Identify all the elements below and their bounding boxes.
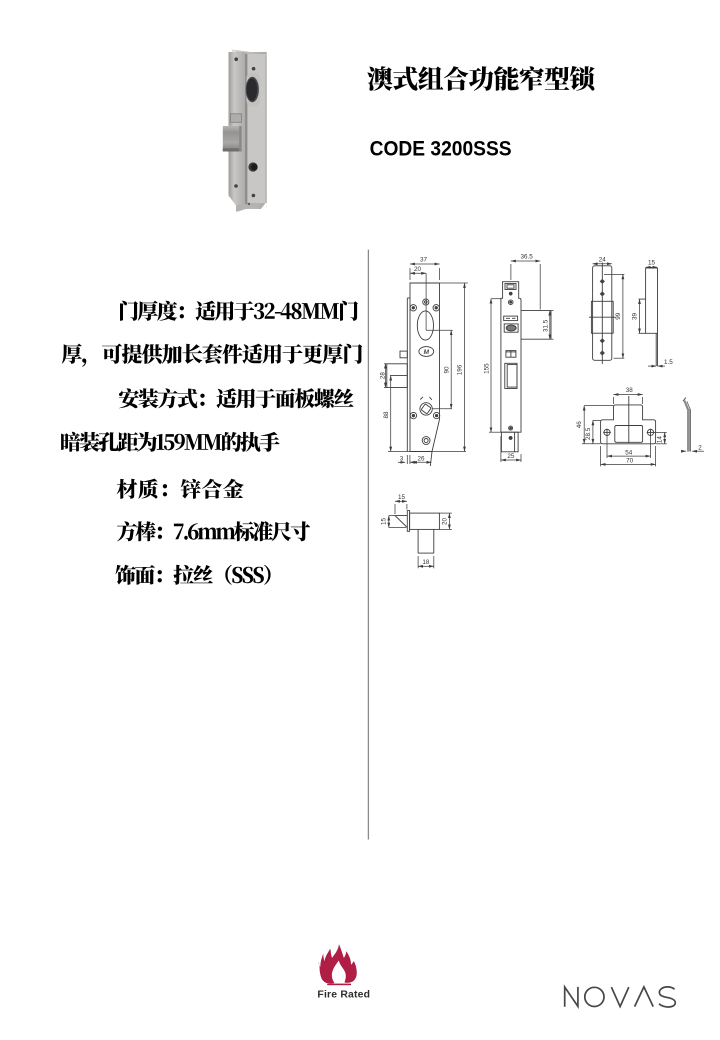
- svg-text:99: 99: [615, 312, 622, 320]
- svg-text:46: 46: [576, 421, 583, 429]
- svg-text:37: 37: [420, 257, 428, 264]
- svg-text:20: 20: [414, 266, 422, 273]
- svg-text:155: 155: [484, 363, 491, 374]
- svg-text:20: 20: [442, 518, 449, 526]
- svg-text:88: 88: [383, 411, 390, 419]
- svg-text:Fire Rated: Fire Rated: [317, 990, 370, 1001]
- svg-text:24: 24: [599, 257, 607, 264]
- svg-text:31.5: 31.5: [542, 319, 549, 332]
- svg-text:15: 15: [398, 494, 406, 501]
- svg-text:38: 38: [626, 387, 634, 394]
- svg-text:36.5: 36.5: [520, 254, 533, 261]
- svg-text:2: 2: [698, 445, 702, 452]
- svg-text:M: M: [424, 349, 430, 356]
- svg-text:54: 54: [625, 449, 633, 456]
- svg-text:25: 25: [507, 453, 515, 460]
- svg-text:14: 14: [656, 436, 663, 444]
- svg-text:15: 15: [381, 518, 388, 526]
- svg-text:28: 28: [379, 372, 386, 380]
- svg-text:70: 70: [626, 458, 634, 465]
- svg-text:3: 3: [400, 456, 404, 463]
- svg-text:18: 18: [422, 559, 430, 566]
- svg-text:28.5: 28.5: [585, 427, 592, 440]
- svg-text:39: 39: [631, 313, 638, 321]
- svg-text:15: 15: [648, 260, 656, 267]
- svg-text:1.5: 1.5: [664, 359, 673, 366]
- svg-text:196: 196: [457, 364, 464, 375]
- svg-text:90: 90: [443, 366, 450, 374]
- svg-text:26: 26: [417, 456, 425, 463]
- svg-text:CODE 3200SSS: CODE 3200SSS: [370, 137, 512, 161]
